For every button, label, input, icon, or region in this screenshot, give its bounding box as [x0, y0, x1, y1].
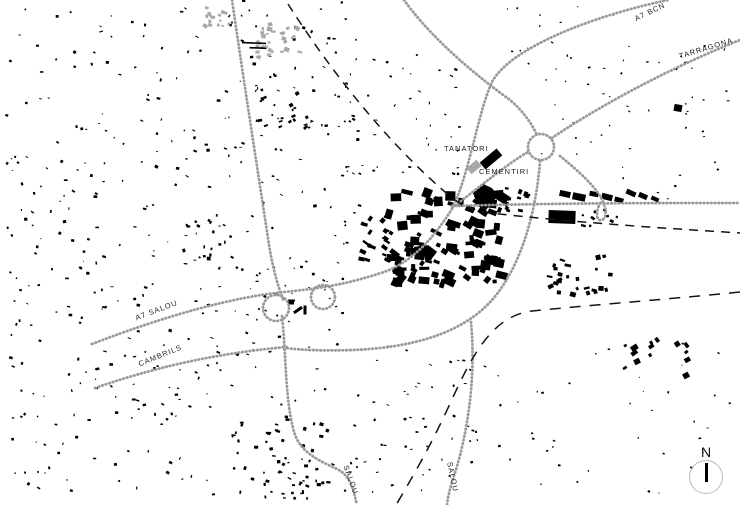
map-canvas	[0, 0, 740, 505]
north-indicator: N	[688, 444, 724, 500]
road-cambrils	[95, 347, 286, 388]
building	[638, 192, 648, 200]
interchange-east	[311, 285, 335, 309]
railways-layer	[288, 4, 740, 505]
poi-label-cementiri: CEMENTIRI	[479, 167, 529, 176]
building	[673, 104, 682, 112]
north-needle-icon	[705, 463, 708, 482]
roads-layer	[92, 0, 740, 505]
building	[559, 190, 571, 198]
roundabout-ne	[528, 134, 554, 160]
north-label: N	[701, 444, 711, 460]
north-circle-icon	[689, 460, 723, 494]
building	[304, 306, 307, 315]
road-ramp-hook	[560, 156, 606, 220]
poi-label-tanatori: TANATORI	[444, 144, 489, 153]
interchange-west	[263, 295, 289, 321]
road-nw-link	[404, 0, 537, 135]
building	[548, 210, 575, 224]
road-a7-bcn	[452, 0, 668, 208]
buildings-layer	[5, 0, 731, 500]
road-tarragona	[552, 40, 740, 138]
building	[572, 192, 586, 202]
building	[651, 196, 660, 203]
map-stage: A7 BCN TARRAGONA TANATORI CEMENTIRI A7 S…	[0, 0, 740, 505]
building	[293, 306, 303, 314]
railway-north-east	[288, 4, 740, 233]
building	[242, 42, 266, 44]
building	[601, 193, 613, 201]
building	[625, 189, 636, 198]
